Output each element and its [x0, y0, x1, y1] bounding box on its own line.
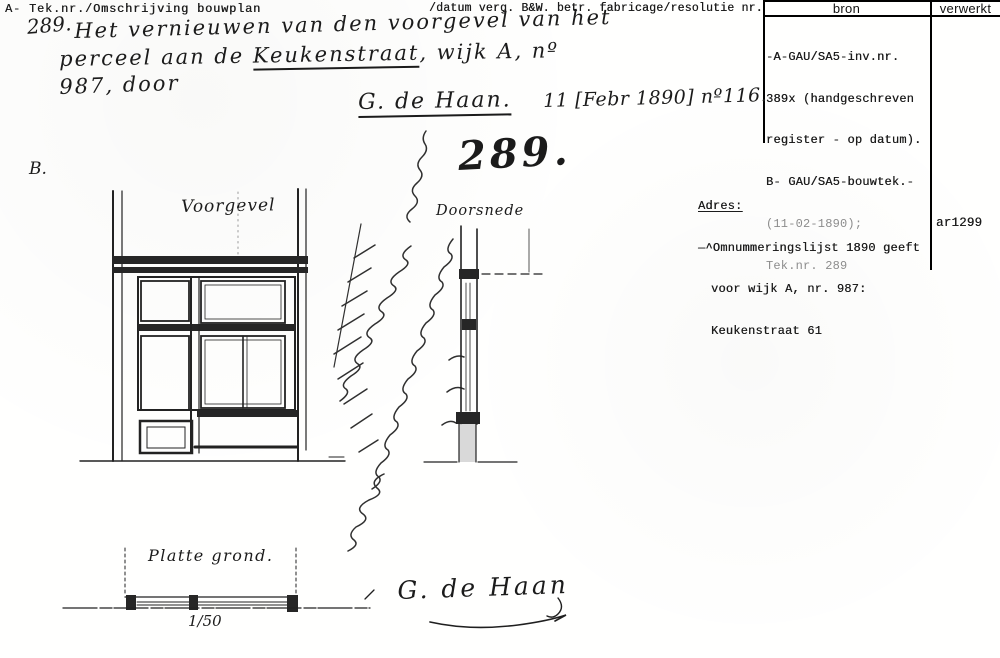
section-drawing [329, 226, 546, 462]
archive-card-scan: A- Tek.nr./Omschrijving bouwplan /datum … [0, 0, 1000, 658]
scrawl-annotation [334, 131, 464, 551]
technical-drawing [0, 0, 1000, 658]
signature-flourish [365, 590, 566, 627]
facade-drawing [80, 189, 345, 461]
plan-drawing [63, 548, 370, 612]
